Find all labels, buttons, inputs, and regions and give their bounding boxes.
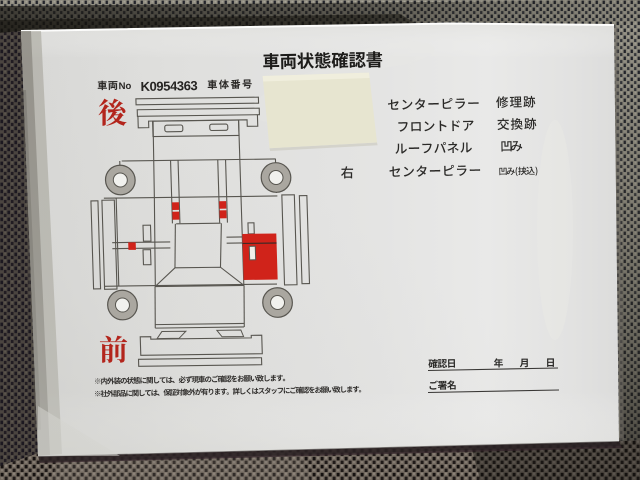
svg-text:K0954363: K0954363 — [140, 78, 197, 94]
svg-text:No: No — [118, 81, 131, 92]
